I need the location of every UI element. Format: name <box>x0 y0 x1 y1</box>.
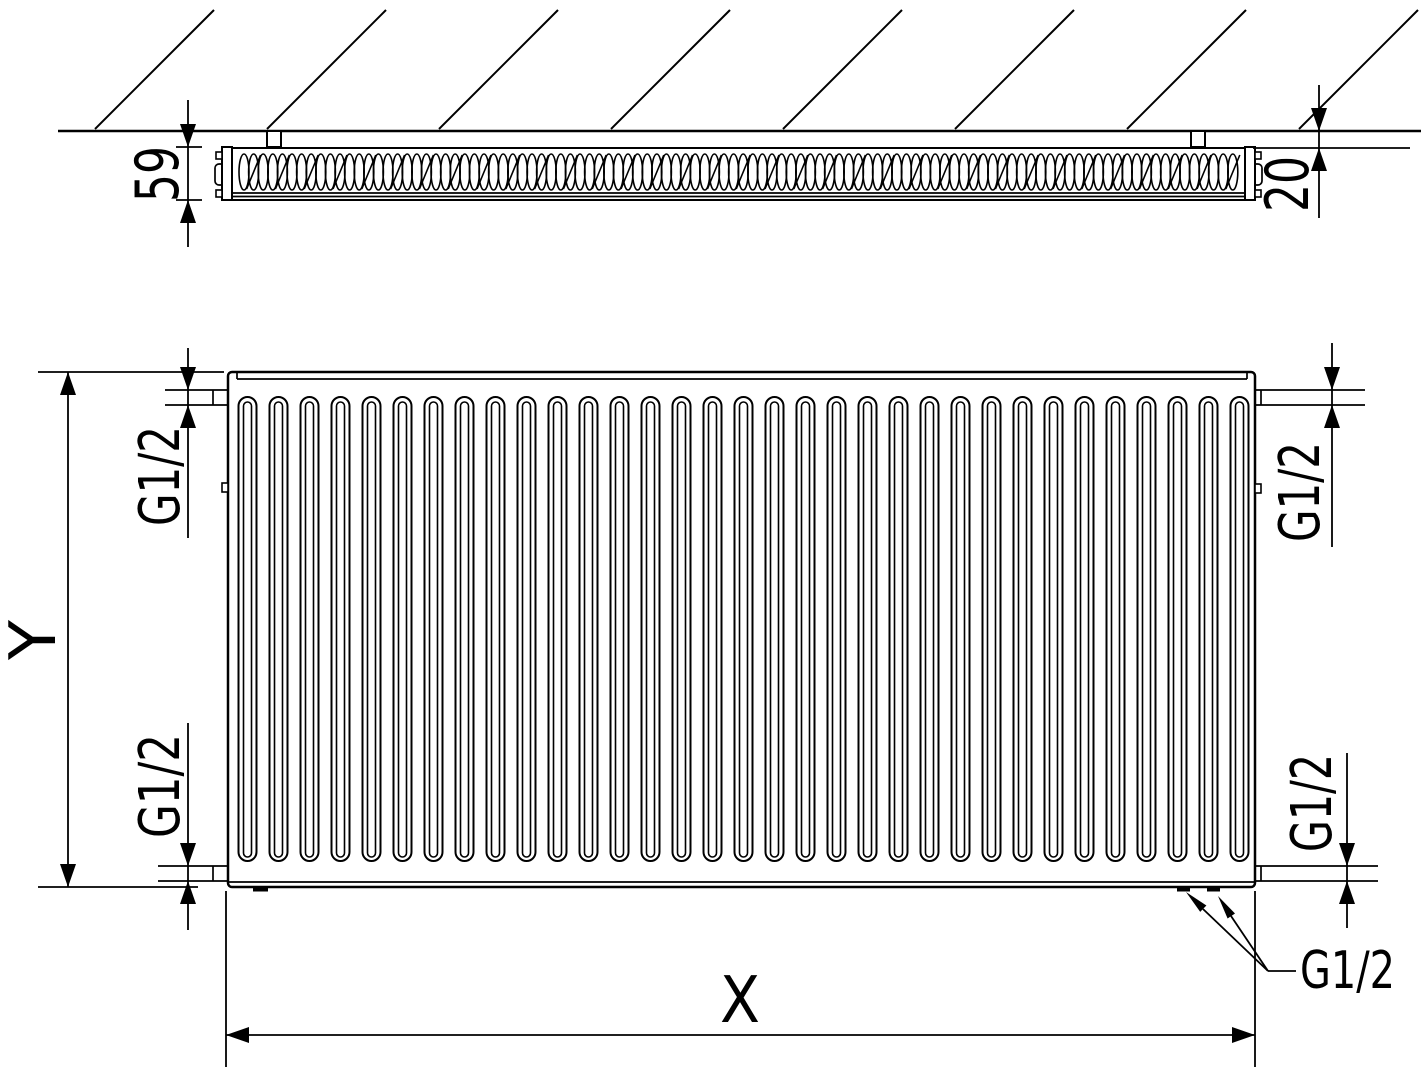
corrugation-loop <box>402 154 412 190</box>
corrugation-loop <box>585 154 595 190</box>
corrugation-loop <box>863 154 873 190</box>
stub-top-left <box>165 390 228 405</box>
corrugation-loop <box>988 154 998 190</box>
corrugation-loop <box>258 154 268 190</box>
corrugation-loop <box>527 154 537 190</box>
corrugation-loop <box>575 154 585 190</box>
corrugation-loop <box>1151 154 1161 190</box>
dim-arrow <box>60 864 76 887</box>
dim-arrow <box>180 843 196 866</box>
corrugation-loop <box>901 154 911 190</box>
leader-conn-bottom: G1/2 <box>1186 892 1395 1001</box>
corrugation-loop <box>661 154 671 190</box>
corrugation-loop <box>642 154 652 190</box>
wall-bracket-left <box>267 131 281 147</box>
corrugation-loop <box>671 154 681 190</box>
dim-arrow <box>180 367 196 390</box>
corrugation-loop <box>949 154 959 190</box>
left-end-lug-top <box>216 152 222 159</box>
corrugation-loop <box>412 154 422 190</box>
dim-arrow <box>1232 1027 1255 1043</box>
dim-wall-distance: 20 <box>1253 85 1410 218</box>
corrugation-loop <box>517 154 527 190</box>
corrugation-loop <box>873 154 883 190</box>
height-value: Y <box>0 619 71 661</box>
dim-arrow <box>180 124 196 147</box>
wall-bracket-right <box>1191 131 1205 147</box>
corrugation-loop <box>1209 154 1219 190</box>
corrugation-loop <box>633 154 643 190</box>
dim-arrow <box>1324 367 1340 390</box>
corrugation-loop <box>1093 154 1103 190</box>
corrugation-loop <box>729 154 739 190</box>
corrugation-loop <box>556 154 566 190</box>
dim-arrow <box>180 405 196 428</box>
conn-label: G1/2 <box>1280 754 1345 852</box>
corrugation-loop <box>546 154 556 190</box>
depth-value: 59 <box>123 146 193 202</box>
corrugation-loop <box>1103 154 1113 190</box>
corrugation-loop <box>268 154 278 190</box>
corrugation-loop <box>892 154 902 190</box>
corrugation-loop <box>719 154 729 190</box>
hatch-line <box>1127 10 1246 129</box>
corrugation-loop <box>469 154 479 190</box>
front-view <box>158 372 1378 892</box>
dim-conn-bottom-left: G1/2 <box>128 723 196 930</box>
corrugation-loop <box>700 154 710 190</box>
corrugation-loop <box>1007 154 1017 190</box>
conn-label: G1/2 <box>1300 941 1395 1001</box>
corrugation-loop <box>815 154 825 190</box>
dim-depth: 59 <box>123 100 202 247</box>
side-clip-right <box>1255 484 1261 493</box>
dim-arrow <box>180 881 196 904</box>
corrugation-loop <box>460 154 470 190</box>
drawing-canvas: 59 20 <box>0 0 1423 1069</box>
corrugation-loop <box>498 154 508 190</box>
corrugation-loop <box>325 154 335 190</box>
left-end-boss <box>215 164 222 185</box>
corrugation-loop <box>1122 154 1132 190</box>
convector-corrugation <box>239 154 1240 190</box>
hatch-line <box>611 10 730 129</box>
corrugation-loop <box>239 154 249 190</box>
wall-distance-value: 20 <box>1253 156 1323 212</box>
corrugation-loop <box>441 154 451 190</box>
length-value: X <box>720 964 760 1038</box>
wall-hatching <box>95 10 1418 129</box>
conn-label: G1/2 <box>128 426 193 526</box>
corrugation-loop <box>316 154 326 190</box>
corrugation-loop <box>354 154 364 190</box>
top-view <box>58 10 1421 200</box>
corrugation-loop <box>757 154 767 190</box>
corrugation-loop <box>959 154 969 190</box>
corrugation-loop <box>921 154 931 190</box>
dim-arrow <box>1324 405 1340 428</box>
corrugation-loop <box>489 154 499 190</box>
side-clip-left <box>222 483 228 492</box>
corrugation-loop <box>1161 154 1171 190</box>
corrugation-loop <box>834 154 844 190</box>
corrugation-loop <box>1189 154 1199 190</box>
dim-conn-bottom-right: G1/2 <box>1280 753 1355 928</box>
corrugation-loop <box>805 154 815 190</box>
conn-label: G1/2 <box>1268 442 1333 542</box>
left-end-lug-bottom <box>216 190 222 197</box>
corrugation-loop <box>297 154 307 190</box>
stub-bottom-right <box>1255 866 1378 881</box>
hatch-line <box>95 10 214 129</box>
panel-outline <box>228 372 1255 887</box>
corrugation-loop <box>1045 154 1055 190</box>
bottom-plug-left <box>253 887 268 892</box>
corrugation-loop <box>1017 154 1027 190</box>
stub-top-right <box>1255 390 1365 405</box>
radiator-technical-drawing: 59 20 <box>0 0 1423 1069</box>
dim-arrow <box>1311 108 1327 131</box>
corrugation-loop <box>844 154 854 190</box>
leader-line-2 <box>1231 916 1268 971</box>
left-end-cap <box>222 147 232 200</box>
corrugation-loop <box>786 154 796 190</box>
corrugation-loop <box>1036 154 1046 190</box>
stub-bottom-left <box>158 866 228 881</box>
corrugation-loop <box>1065 154 1075 190</box>
dim-arrow <box>60 372 76 395</box>
hatch-line <box>955 10 1074 129</box>
corrugation-loop <box>383 154 393 190</box>
corrugation-loop <box>748 154 758 190</box>
leader-arrow <box>1218 896 1235 919</box>
corrugation-loop <box>777 154 787 190</box>
corrugation-loop <box>604 154 614 190</box>
corrugation-loop <box>431 154 441 190</box>
conn-label: G1/2 <box>128 734 193 838</box>
corrugation-loop <box>1074 154 1084 190</box>
hatch-line <box>783 10 902 129</box>
hatch-line <box>267 10 386 129</box>
corrugation-loop <box>930 154 940 190</box>
corrugation-loop <box>287 154 297 190</box>
corrugation-loop <box>373 154 383 190</box>
dim-conn-top-right: G1/2 <box>1268 343 1340 547</box>
dim-arrow <box>1339 881 1355 904</box>
hatch-line <box>439 10 558 129</box>
corrugation-loop <box>690 154 700 190</box>
dim-conn-top-left: G1/2 <box>128 348 196 538</box>
corrugation-loop <box>613 154 623 190</box>
dim-arrow <box>180 200 196 223</box>
corrugation-loop <box>1218 154 1228 190</box>
corrugation-loop <box>1132 154 1142 190</box>
dim-length: X <box>226 891 1255 1067</box>
corrugation-loop <box>1180 154 1190 190</box>
dim-arrow <box>226 1027 249 1043</box>
leader-line-1 <box>1203 909 1268 971</box>
bottom-valve-2 <box>1207 887 1220 892</box>
corrugation-loop <box>978 154 988 190</box>
bottom-valve-1 <box>1177 887 1190 892</box>
corrugation-loop <box>345 154 355 190</box>
radiator-section <box>215 147 1262 200</box>
